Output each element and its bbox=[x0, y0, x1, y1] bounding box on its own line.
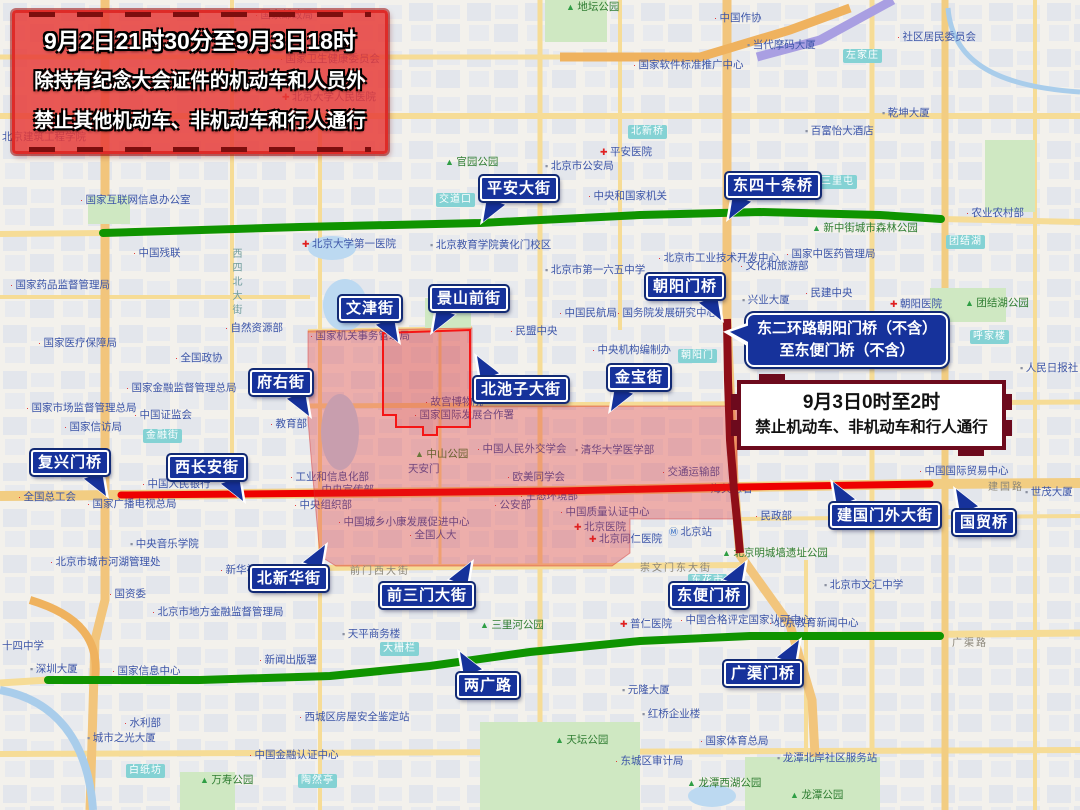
street-label-text: 国贸桥 bbox=[953, 510, 1015, 535]
street-label-dongbianmen-qiao: 东便门桥 bbox=[670, 583, 748, 608]
banner-exception: 除持有纪念大会证件的机动车和人员外 bbox=[19, 61, 381, 101]
place-badge: 三里屯 bbox=[818, 175, 857, 189]
street-label-dongsishitiao-qiao: 东四十条桥 bbox=[726, 173, 820, 198]
place-badge: 陶然亭 bbox=[298, 774, 337, 788]
east-ring-segment-banner: 东二环路朝阳门桥（不含） 至东便门桥（不含） bbox=[746, 313, 948, 367]
street-label-wenjin-jie: 文津街 bbox=[339, 296, 401, 321]
street-label-text: 复兴门桥 bbox=[31, 450, 109, 475]
street-label-text: 金宝街 bbox=[608, 365, 670, 390]
place-badge: 大栅栏 bbox=[380, 642, 419, 656]
street-label-text: 东四十条桥 bbox=[726, 173, 820, 198]
street-label-text: 文津街 bbox=[339, 296, 401, 321]
place-badge: 朝阳门 bbox=[678, 349, 717, 363]
street-name-text: 前门西大街 bbox=[350, 562, 410, 577]
street-label-text: 景山前街 bbox=[430, 286, 508, 311]
banner-prohibition: 禁止其他机动车、非机动车和行人通行 bbox=[19, 101, 381, 141]
place-badge: 呼家楼 bbox=[970, 330, 1009, 344]
street-label-text: 朝阳门桥 bbox=[646, 274, 724, 299]
street-label-guangqumen-qiao: 广渠门桥 bbox=[724, 661, 802, 686]
street-label-qiansanmen-dajie: 前三门大街 bbox=[380, 583, 474, 608]
banner-frame-tab bbox=[731, 420, 738, 436]
street-label-jinbao-jie: 金宝街 bbox=[608, 365, 670, 390]
street-name-text: 崇文门东大街 bbox=[640, 559, 712, 574]
street-label-text: 广渠门桥 bbox=[724, 661, 802, 686]
street-name-text: 广渠路 bbox=[952, 634, 988, 649]
banner-frame-tab bbox=[759, 374, 785, 381]
street-label-fuxingmen-qiao: 复兴门桥 bbox=[31, 450, 109, 475]
street-name-text: 西四北大街 bbox=[228, 248, 243, 318]
banner-frame-tab bbox=[958, 449, 984, 456]
place-badge: 团结湖 bbox=[946, 235, 985, 249]
traffic-control-map: · 国家邮政局▪ 北京汉华国际饭店· 国家卫生健康委员会✚ 北京大学人民医院· … bbox=[0, 0, 1080, 810]
street-label-text: 北池子大街 bbox=[474, 377, 568, 402]
street-label-pingan-dajie: 平安大街 bbox=[480, 176, 558, 201]
place-badge: 交道口 bbox=[436, 193, 475, 207]
place-badge: 左家庄 bbox=[843, 49, 882, 63]
street-label-text: 建国门外大街 bbox=[830, 503, 940, 528]
street-label-text: 西长安街 bbox=[168, 455, 246, 480]
street-label-fuyou-jie: 府右街 bbox=[250, 370, 312, 395]
night-ban-time: 9月3日0时至2时 bbox=[743, 390, 1000, 416]
place-badge: 白纸坊 bbox=[126, 764, 165, 778]
street-label-text: 北新华街 bbox=[250, 566, 328, 591]
street-label-jianguomenwai-dajie: 建国门外大街 bbox=[830, 503, 940, 528]
street-label-text: 平安大街 bbox=[480, 176, 558, 201]
street-label-text: 东便门桥 bbox=[670, 583, 748, 608]
street-label-beichizi-dajie: 北池子大街 bbox=[474, 377, 568, 402]
street-label-text: 前三门大街 bbox=[380, 583, 474, 608]
street-label-chaoyangmen-qiao: 朝阳门桥 bbox=[646, 274, 724, 299]
banner-frame-tab bbox=[1005, 420, 1012, 436]
ring-banner-line2: 至东便门桥（不含） bbox=[757, 340, 937, 362]
place-badge: 北新桥 bbox=[628, 125, 667, 139]
main-restriction-banner: 9月2日21时30分至9月3日18时 除持有纪念大会证件的机动车和人员外 禁止其… bbox=[12, 10, 388, 154]
banner-time-range: 9月2日21时30分至9月3日18时 bbox=[19, 21, 381, 61]
street-label-liangguang-lu: 两广路 bbox=[457, 673, 519, 698]
place-badge: 金融街 bbox=[143, 429, 182, 443]
night-ban-text: 禁止机动车、非机动车和行人通行 bbox=[743, 416, 1000, 440]
banner-frame-tab bbox=[1005, 394, 1012, 410]
banner-frame-tab bbox=[731, 394, 738, 410]
street-label-jingshanqian-jie: 景山前街 bbox=[430, 286, 508, 311]
ring-banner-line1: 东二环路朝阳门桥（不含） bbox=[757, 318, 937, 340]
street-label-xichangan-jie: 西长安街 bbox=[168, 455, 246, 480]
street-label-beixinhua-jie: 北新华街 bbox=[250, 566, 328, 591]
night-ban-banner: 9月3日0时至2时 禁止机动车、非机动车和行人通行 bbox=[737, 380, 1006, 450]
street-label-guomao-qiao: 国贸桥 bbox=[953, 510, 1015, 535]
street-label-text: 府右街 bbox=[250, 370, 312, 395]
street-label-text: 两广路 bbox=[457, 673, 519, 698]
street-name-text: 建国路 bbox=[988, 478, 1024, 493]
